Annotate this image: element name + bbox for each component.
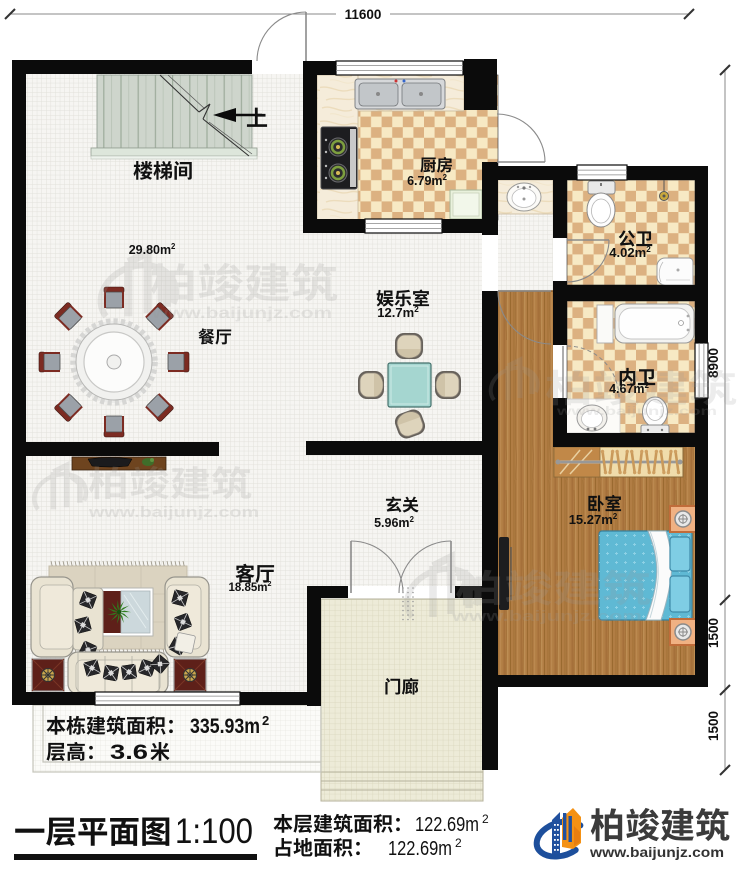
svg-text:15.27m: 15.27m <box>569 512 613 527</box>
svg-text:4.67m: 4.67m <box>609 382 644 396</box>
svg-text:2: 2 <box>613 512 618 521</box>
svg-text:122.69m: 122.69m <box>415 814 479 836</box>
svg-text:www.baijunjz.com: www.baijunjz.com <box>88 504 259 521</box>
svg-text:2: 2 <box>414 305 419 314</box>
svg-text:1:100: 1:100 <box>175 812 253 851</box>
svg-text:2: 2 <box>646 245 651 254</box>
svg-text:www.baijunjz.com: www.baijunjz.com <box>151 305 332 322</box>
svg-text:www.baijunjz.com: www.baijunjz.com <box>589 845 724 860</box>
svg-text:1500: 1500 <box>706 618 721 648</box>
svg-text:12.7m: 12.7m <box>377 305 414 320</box>
svg-text:www.baijunjz.com: www.baijunjz.com <box>555 406 717 418</box>
svg-text:11600: 11600 <box>345 7 382 22</box>
svg-text:122.69m: 122.69m <box>388 838 452 860</box>
svg-text:2: 2 <box>171 242 176 251</box>
svg-text:2: 2 <box>482 812 489 826</box>
svg-text:18.85m: 18.85m <box>229 582 268 594</box>
svg-text:2: 2 <box>443 173 448 182</box>
svg-text:2: 2 <box>645 381 650 390</box>
svg-text:4.02m: 4.02m <box>609 245 646 260</box>
svg-text:335.93m: 335.93m <box>190 715 260 738</box>
svg-text:2: 2 <box>262 713 269 728</box>
svg-text:2: 2 <box>268 580 272 588</box>
svg-text:6.79m: 6.79m <box>407 174 442 188</box>
svg-text:1500: 1500 <box>706 711 721 741</box>
svg-text:2: 2 <box>410 515 415 524</box>
svg-text:3.6: 3.6 <box>110 741 148 764</box>
svg-text:29.80m: 29.80m <box>129 243 171 257</box>
svg-text:2: 2 <box>455 836 462 850</box>
svg-text:www.baijunjz.com: www.baijunjz.com <box>451 608 642 625</box>
svg-text:5.96m: 5.96m <box>374 516 409 530</box>
